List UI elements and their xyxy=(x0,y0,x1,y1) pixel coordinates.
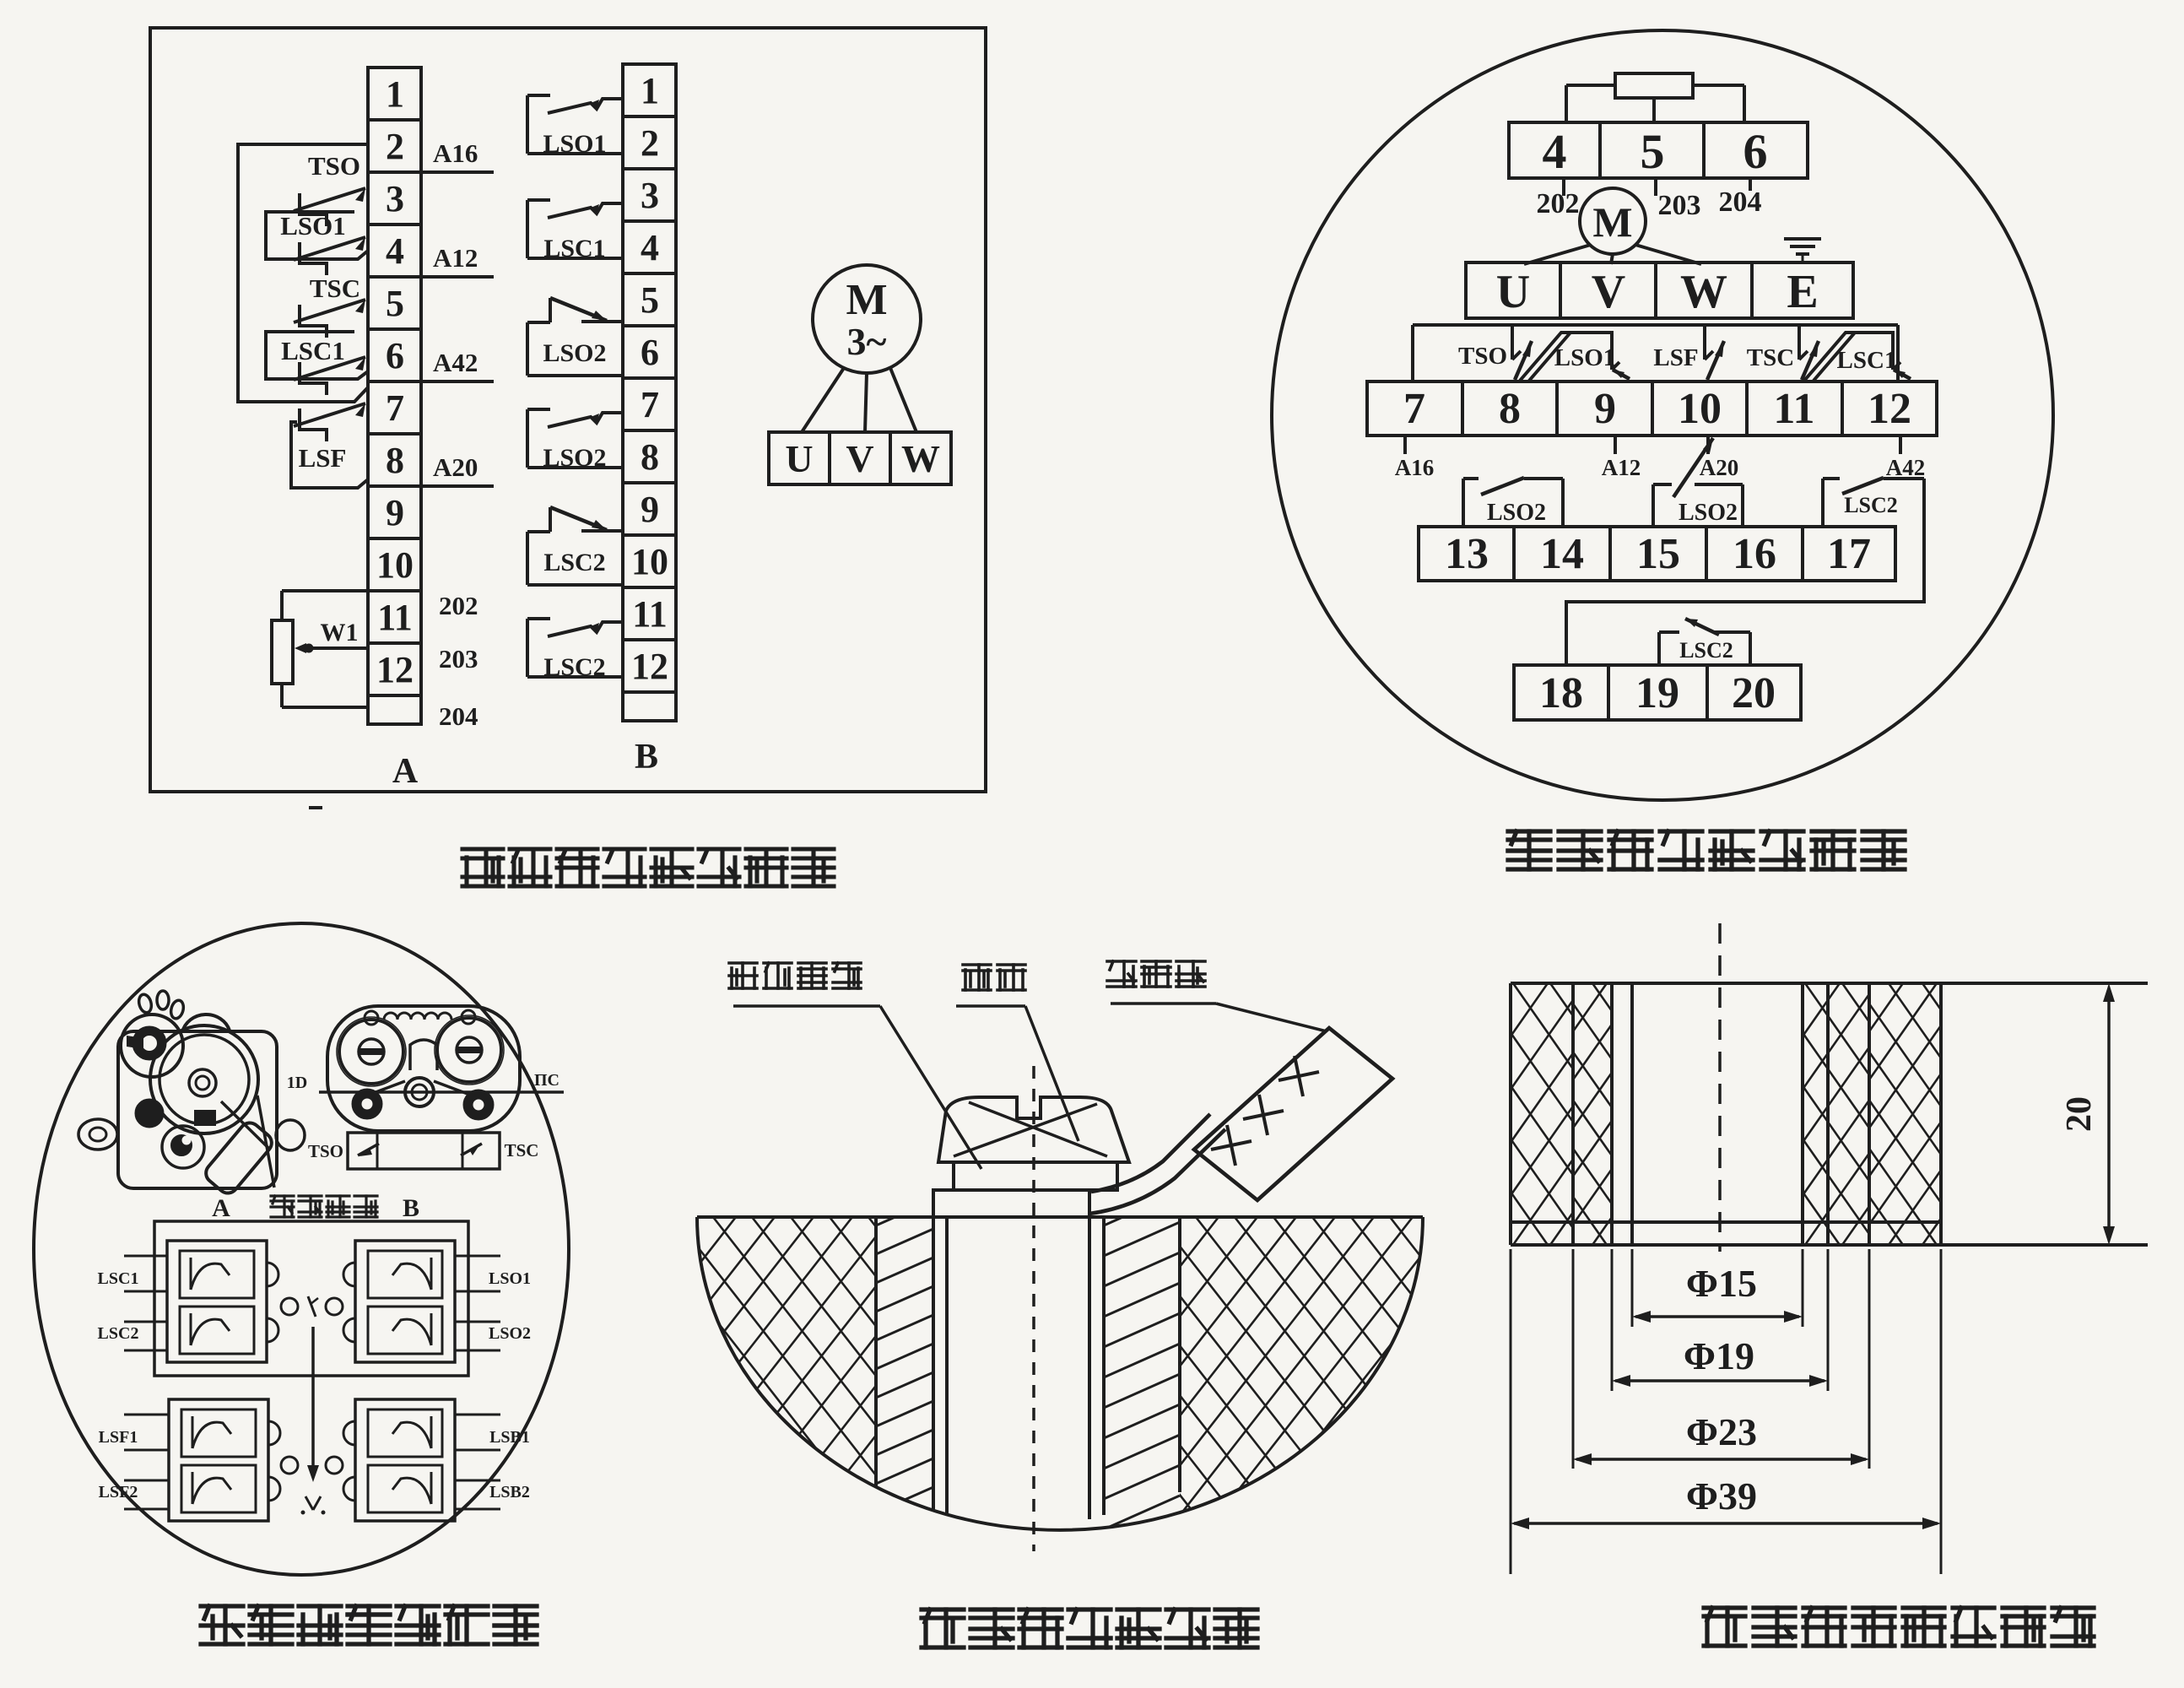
svg-text:12: 12 xyxy=(1868,385,1911,433)
svg-text:4: 4 xyxy=(386,230,404,272)
svg-text:13: 13 xyxy=(1445,530,1489,578)
svg-text:M: M xyxy=(846,276,887,324)
svg-text:TSC: TSC xyxy=(310,273,360,303)
svg-text:Φ15: Φ15 xyxy=(1686,1262,1757,1305)
svg-text:LSB2: LSB2 xyxy=(489,1483,530,1501)
svg-text:W1: W1 xyxy=(321,619,359,647)
svg-text:7: 7 xyxy=(641,384,659,425)
svg-text:LSF: LSF xyxy=(299,443,347,473)
svg-text:V: V xyxy=(1592,266,1625,318)
svg-text:203: 203 xyxy=(1658,190,1701,221)
svg-text:Φ23: Φ23 xyxy=(1686,1410,1757,1453)
svg-text:12: 12 xyxy=(631,646,668,687)
svg-text:4: 4 xyxy=(1543,124,1567,179)
svg-text:LSC2: LSC2 xyxy=(1679,638,1733,663)
svg-text:V: V xyxy=(846,437,873,480)
svg-text:LSO2: LSO2 xyxy=(1679,500,1738,526)
svg-text:203: 203 xyxy=(439,644,478,674)
svg-text:10: 10 xyxy=(631,541,668,582)
svg-text:TSO: TSO xyxy=(1458,343,1507,370)
svg-text:A16: A16 xyxy=(433,138,478,168)
svg-text:LSC1: LSC1 xyxy=(1837,347,1897,374)
svg-text:4: 4 xyxy=(641,227,659,268)
svg-text:A20: A20 xyxy=(1700,455,1739,480)
svg-text:5: 5 xyxy=(641,279,659,321)
svg-text:U: U xyxy=(1496,266,1530,318)
svg-text:204: 204 xyxy=(439,701,478,731)
svg-text:A: A xyxy=(392,752,419,791)
svg-text:12: 12 xyxy=(376,649,414,690)
svg-text:10: 10 xyxy=(376,544,414,586)
svg-text:8: 8 xyxy=(641,436,659,478)
svg-text:LSO1: LSO1 xyxy=(1554,344,1616,371)
svg-text:11: 11 xyxy=(632,593,668,635)
svg-text:ΠC: ΠC xyxy=(534,1071,560,1090)
svg-text:B: B xyxy=(403,1194,419,1222)
svg-text:1: 1 xyxy=(641,70,659,111)
svg-text:202: 202 xyxy=(439,591,478,620)
svg-text:LSC1: LSC1 xyxy=(543,235,605,262)
svg-text:204: 204 xyxy=(1719,187,1762,218)
svg-text:2: 2 xyxy=(641,122,659,164)
svg-text:TSC: TSC xyxy=(505,1140,539,1160)
svg-text:M: M xyxy=(1592,198,1632,246)
svg-text:5: 5 xyxy=(1641,124,1665,179)
svg-text:A12: A12 xyxy=(433,243,478,273)
svg-text:Φ39: Φ39 xyxy=(1686,1474,1757,1518)
svg-text:19: 19 xyxy=(1635,669,1679,717)
svg-text:3: 3 xyxy=(641,175,659,216)
svg-text:LSO2: LSO2 xyxy=(1487,500,1546,526)
svg-text:11: 11 xyxy=(1773,385,1814,433)
svg-text:LSF1: LSF1 xyxy=(99,1428,138,1447)
svg-text:W: W xyxy=(901,437,940,480)
svg-text:3~: 3~ xyxy=(847,320,887,363)
svg-text:3: 3 xyxy=(386,178,404,219)
svg-text:9: 9 xyxy=(641,489,659,530)
svg-text:LSO1: LSO1 xyxy=(543,130,606,158)
svg-text:1: 1 xyxy=(386,73,404,115)
svg-text:18: 18 xyxy=(1539,669,1583,717)
svg-text:E: E xyxy=(1787,266,1818,318)
svg-text:LSC2: LSC2 xyxy=(543,549,605,576)
svg-text:LSO1: LSO1 xyxy=(280,211,346,241)
svg-text:A12: A12 xyxy=(1602,455,1641,480)
svg-text:16: 16 xyxy=(1733,530,1776,578)
svg-text:LSO2: LSO2 xyxy=(489,1324,531,1343)
svg-text:20: 20 xyxy=(2060,1096,2099,1132)
svg-text:14: 14 xyxy=(1540,530,1584,578)
svg-text:LSC1: LSC1 xyxy=(98,1269,139,1288)
svg-text:10: 10 xyxy=(1678,385,1722,433)
svg-text:1D: 1D xyxy=(287,1074,307,1092)
svg-text:LSO2: LSO2 xyxy=(543,444,606,472)
svg-text:LSF2: LSF2 xyxy=(99,1483,138,1501)
svg-text:7: 7 xyxy=(386,387,404,429)
svg-text:A20: A20 xyxy=(433,452,478,482)
svg-text:202: 202 xyxy=(1537,188,1580,219)
svg-text:11: 11 xyxy=(377,597,413,638)
svg-text:20: 20 xyxy=(1732,669,1776,717)
svg-text:9: 9 xyxy=(1594,385,1616,433)
svg-text:LSC2: LSC2 xyxy=(98,1324,139,1343)
svg-text:U: U xyxy=(785,437,813,480)
svg-text:8: 8 xyxy=(1499,385,1521,433)
svg-text:LSF: LSF xyxy=(1653,344,1698,371)
svg-text:6: 6 xyxy=(386,335,404,376)
svg-text:6: 6 xyxy=(641,332,659,373)
svg-text:5: 5 xyxy=(386,283,404,324)
svg-text:LSC2: LSC2 xyxy=(1844,493,1898,517)
svg-text:LSC1: LSC1 xyxy=(281,336,345,365)
svg-text:TSO: TSO xyxy=(308,151,360,181)
svg-text:TSO: TSO xyxy=(308,1141,343,1161)
svg-text:TSC: TSC xyxy=(1747,344,1794,371)
svg-text:LSC2: LSC2 xyxy=(543,653,605,681)
svg-text:6: 6 xyxy=(1743,124,1768,179)
svg-text:8: 8 xyxy=(386,440,404,481)
svg-text:LSB1: LSB1 xyxy=(489,1428,530,1447)
svg-text:9: 9 xyxy=(386,492,404,533)
svg-text:A42: A42 xyxy=(433,348,478,377)
svg-text:7: 7 xyxy=(1403,385,1425,433)
svg-text:15: 15 xyxy=(1636,530,1680,578)
svg-text:Φ19: Φ19 xyxy=(1684,1334,1754,1377)
svg-text:B: B xyxy=(635,738,658,776)
svg-text:A: A xyxy=(212,1194,230,1222)
svg-text:17: 17 xyxy=(1827,530,1871,578)
svg-text:LSO2: LSO2 xyxy=(543,339,606,367)
svg-text:W: W xyxy=(1680,266,1727,318)
svg-text:LSO1: LSO1 xyxy=(489,1269,531,1288)
svg-text:A16: A16 xyxy=(1395,455,1435,480)
svg-text:A42: A42 xyxy=(1886,455,1926,480)
svg-text:2: 2 xyxy=(386,126,404,167)
